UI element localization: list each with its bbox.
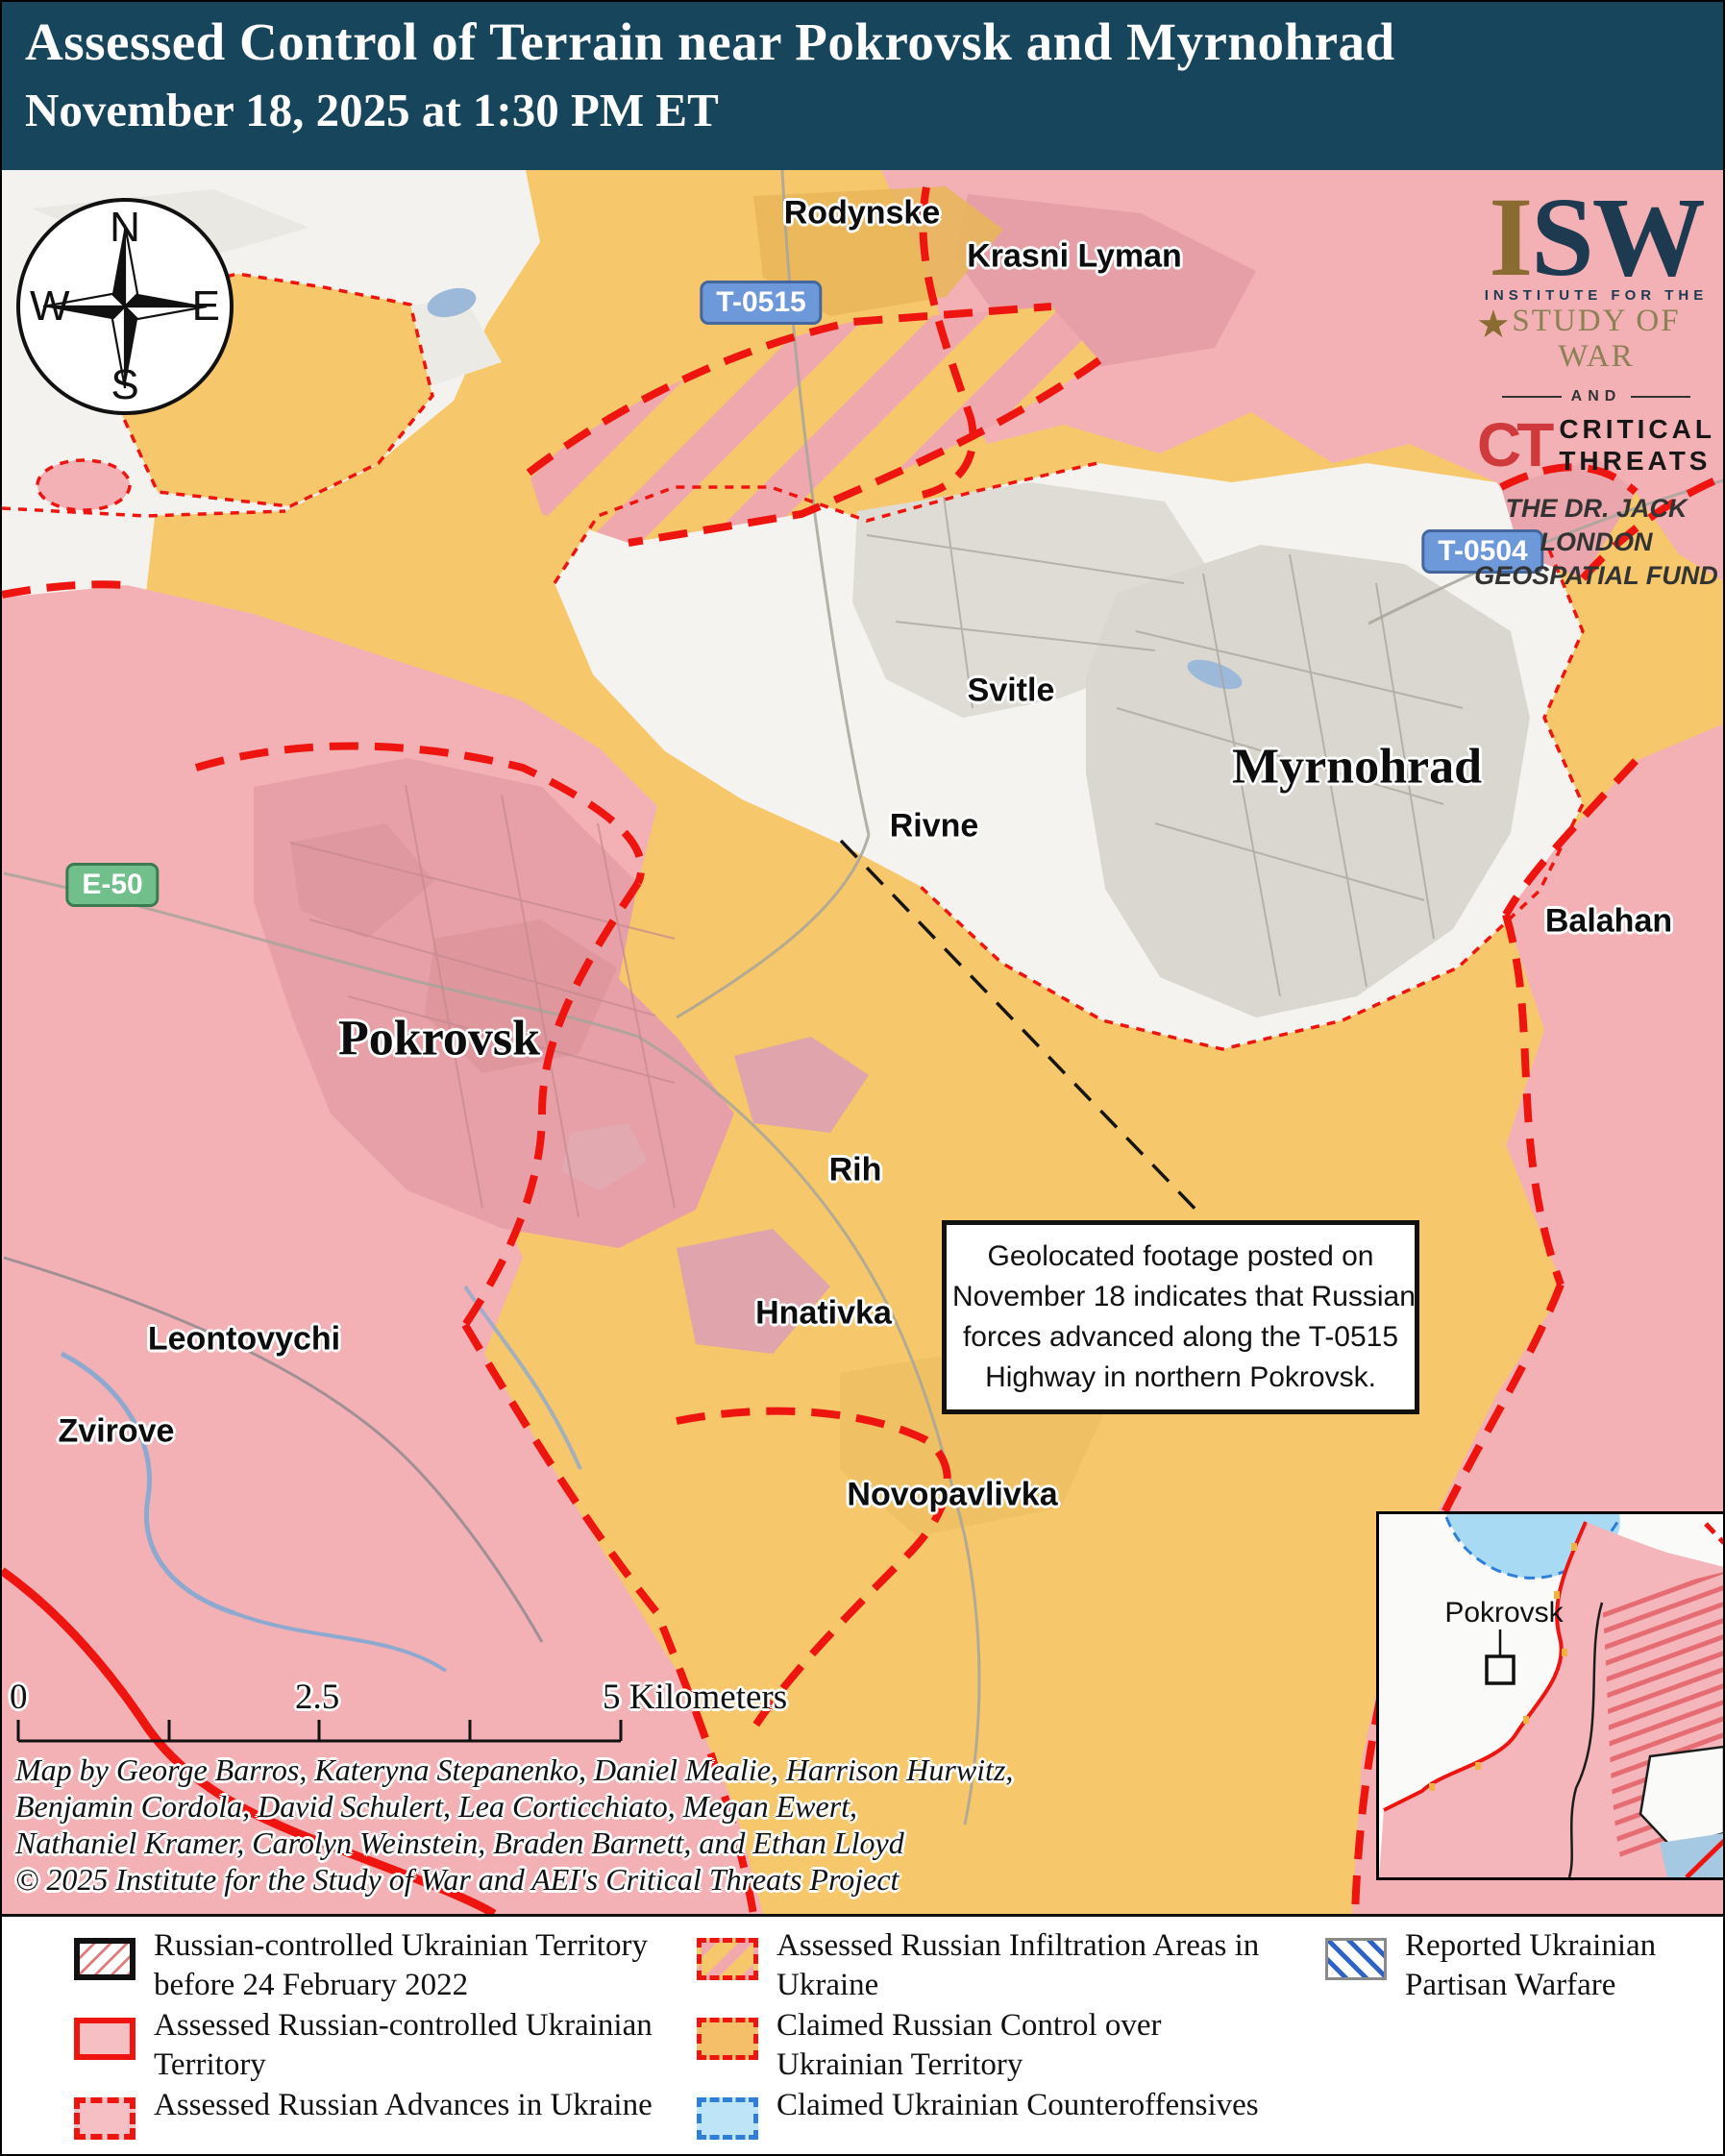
map-timestamp: November 18, 2025 at 1:30 PM ET xyxy=(25,83,719,137)
place-label-rodynske: Rodynske xyxy=(784,195,941,233)
inset-graphics xyxy=(1379,1514,1724,1877)
isw-map-page: Assessed Control of Terrain near Pokrovs… xyxy=(0,0,1725,2156)
isw-institute-text: INSTITUTE FOR THE xyxy=(1470,287,1722,304)
compass-rose: N E S W xyxy=(16,198,234,415)
critical-threats-text: CRITICAL THREATS xyxy=(1559,413,1715,477)
place-label-leontovychi: Leontovychi xyxy=(148,1321,340,1359)
title-bar: Assessed Control of Terrain near Pokrovs… xyxy=(2,2,1725,170)
place-label-krasni-lyman: Krasni Lyman xyxy=(967,238,1182,276)
place-label-hnativka: Hnativka xyxy=(755,1295,892,1333)
map-canvas: N E S W ISW ★ INSTITUTE FOR THE STUDY OF… xyxy=(2,170,1725,1914)
legend-swatch-infiltration xyxy=(697,1938,758,1980)
legend-swatch-claimed-russian xyxy=(697,2018,758,2060)
place-label-balahan: Balahan xyxy=(1545,903,1672,941)
legend: Russian-controlled Ukrainian Territory b… xyxy=(2,1914,1725,2156)
place-label-svitle: Svitle xyxy=(968,673,1055,710)
place-label-rih: Rih xyxy=(829,1152,882,1189)
compass-east: E xyxy=(192,282,220,331)
legend-swatch-russian-advances xyxy=(74,2097,136,2140)
place-label-myrnohrad: Myrnohrad xyxy=(1232,739,1482,796)
place-label-zvirove: Zvirove xyxy=(59,1413,175,1451)
isw-ct-logo: ISW ★ INSTITUTE FOR THE STUDY OF WAR AND… xyxy=(1470,189,1722,593)
compass-south: S xyxy=(111,361,138,409)
and-text: AND xyxy=(1571,388,1622,405)
legend-swatch-counteroffensives xyxy=(697,2097,758,2140)
inset-label-pokrovsk: Pokrovsk xyxy=(1408,1597,1600,1629)
place-label-novopavlivka: Novopavlivka xyxy=(847,1477,1057,1514)
scale-label-end: 5 Kilometers xyxy=(603,1677,787,1718)
road-badge-t0515: T-0515 xyxy=(700,281,822,325)
legend-swatch-assessed-russian xyxy=(74,2018,136,2060)
scale-label-start: 0 xyxy=(10,1677,28,1718)
divider xyxy=(1631,396,1690,398)
map-title: Assessed Control of Terrain near Pokrovs… xyxy=(25,12,1395,72)
place-label-pokrovsk: Pokrovsk xyxy=(338,1011,540,1067)
compass-west: W xyxy=(30,282,70,331)
legend-swatch-pre2022 xyxy=(74,1938,136,1980)
annotation-box: Geolocated footage posted on November 18… xyxy=(942,1220,1419,1414)
isw-wordmark: ISW xyxy=(1470,189,1722,285)
legend-swatch-partisan xyxy=(1325,1938,1387,1980)
compass-north: N xyxy=(110,204,140,252)
geospatial-fund-text: THE DR. JACK LONDON GEOSPATIAL FUND xyxy=(1470,492,1722,593)
ct-logo-icon: CT xyxy=(1477,416,1549,474)
road-badge-e50: E-50 xyxy=(65,863,159,907)
place-label-rivne: Rivne xyxy=(890,808,979,845)
divider xyxy=(1502,396,1562,398)
inset-locator-map: Pokrovsk xyxy=(1376,1511,1725,1880)
scale-label-middle: 2.5 xyxy=(295,1677,339,1718)
map-credits: Map by George Barros, Kateryna Stepanenk… xyxy=(15,1752,1013,1898)
isw-star-icon: ★ xyxy=(1476,303,1511,347)
